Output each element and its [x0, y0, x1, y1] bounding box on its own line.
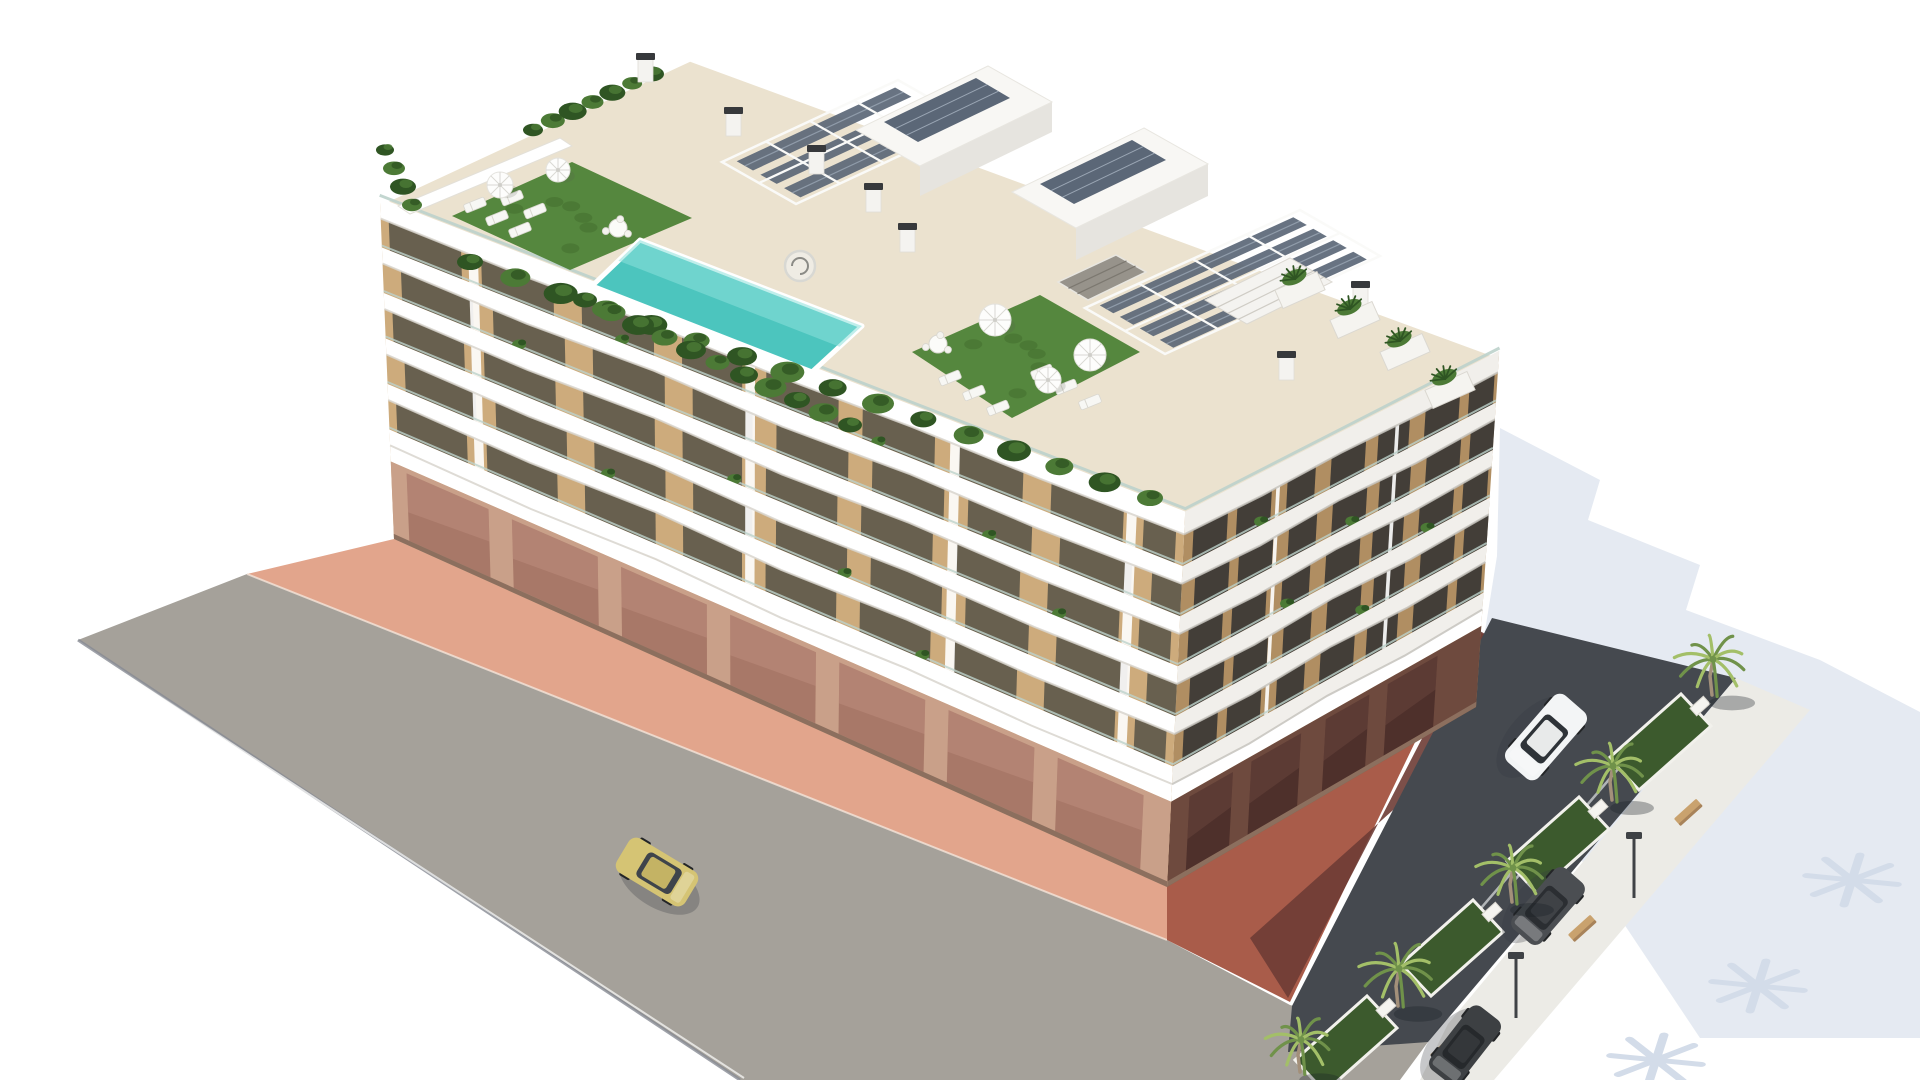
chimney-pillar [1277, 351, 1296, 380]
chimney-pillar [807, 145, 826, 174]
architectural-render-stage [0, 0, 1920, 1080]
architectural-rendering [0, 0, 1920, 1080]
chimney-pillar [636, 53, 655, 82]
spiral-staircase [785, 251, 815, 281]
chimney-pillar [898, 223, 917, 252]
chimney-pillar [724, 107, 743, 136]
chimney-pillar [864, 183, 883, 212]
